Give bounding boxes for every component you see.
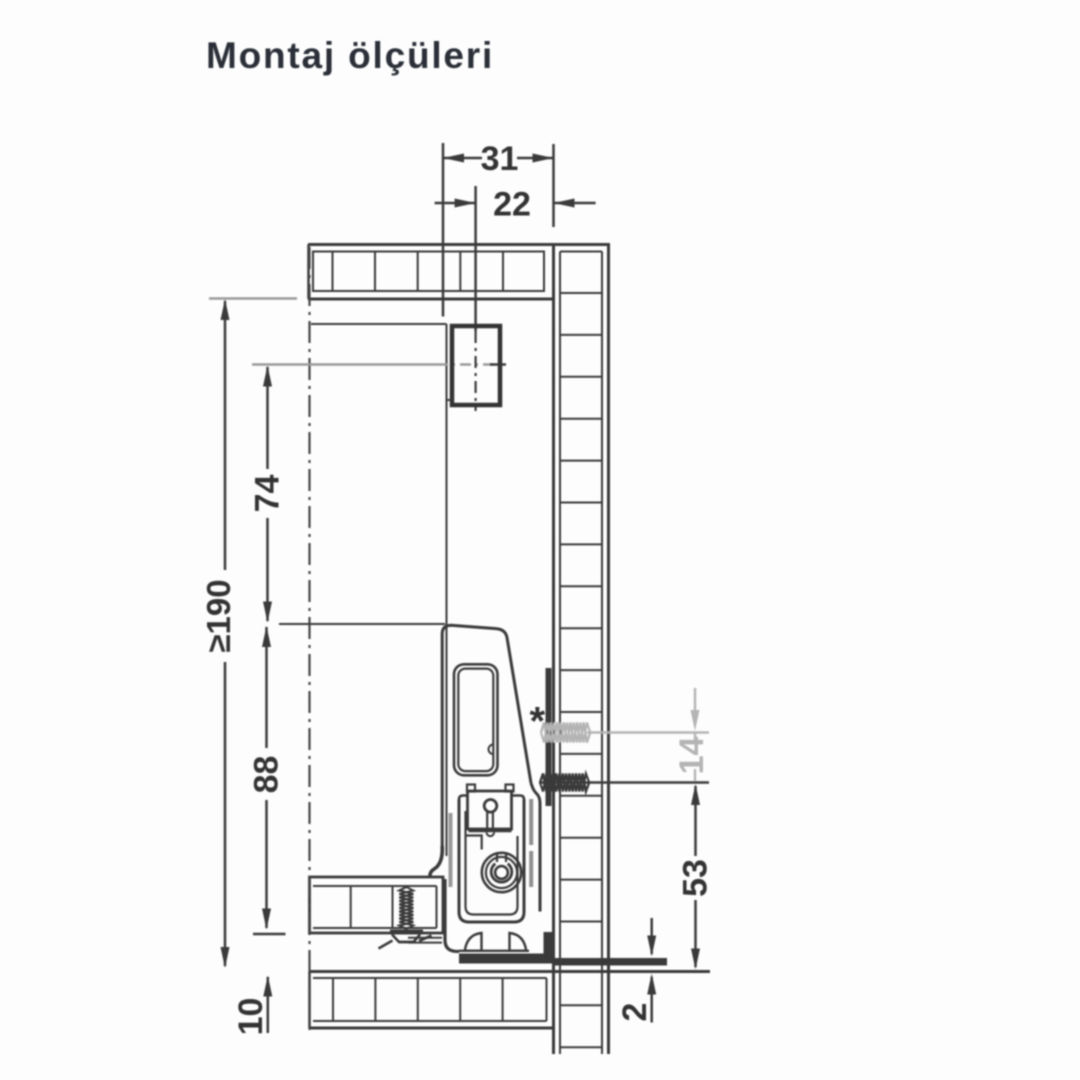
svg-text:10: 10 <box>232 998 270 1036</box>
svg-text:≥190: ≥190 <box>200 579 237 652</box>
svg-text:88: 88 <box>248 756 286 794</box>
svg-text:22: 22 <box>493 186 531 224</box>
svg-text:*: * <box>530 700 546 744</box>
svg-text:53: 53 <box>677 859 715 897</box>
svg-text:Montaj ölçüleri: Montaj ölçüleri <box>206 35 494 76</box>
svg-text:74: 74 <box>249 475 287 513</box>
svg-text:14: 14 <box>673 737 711 775</box>
svg-text:31: 31 <box>481 140 519 178</box>
svg-text:2: 2 <box>616 1003 654 1022</box>
